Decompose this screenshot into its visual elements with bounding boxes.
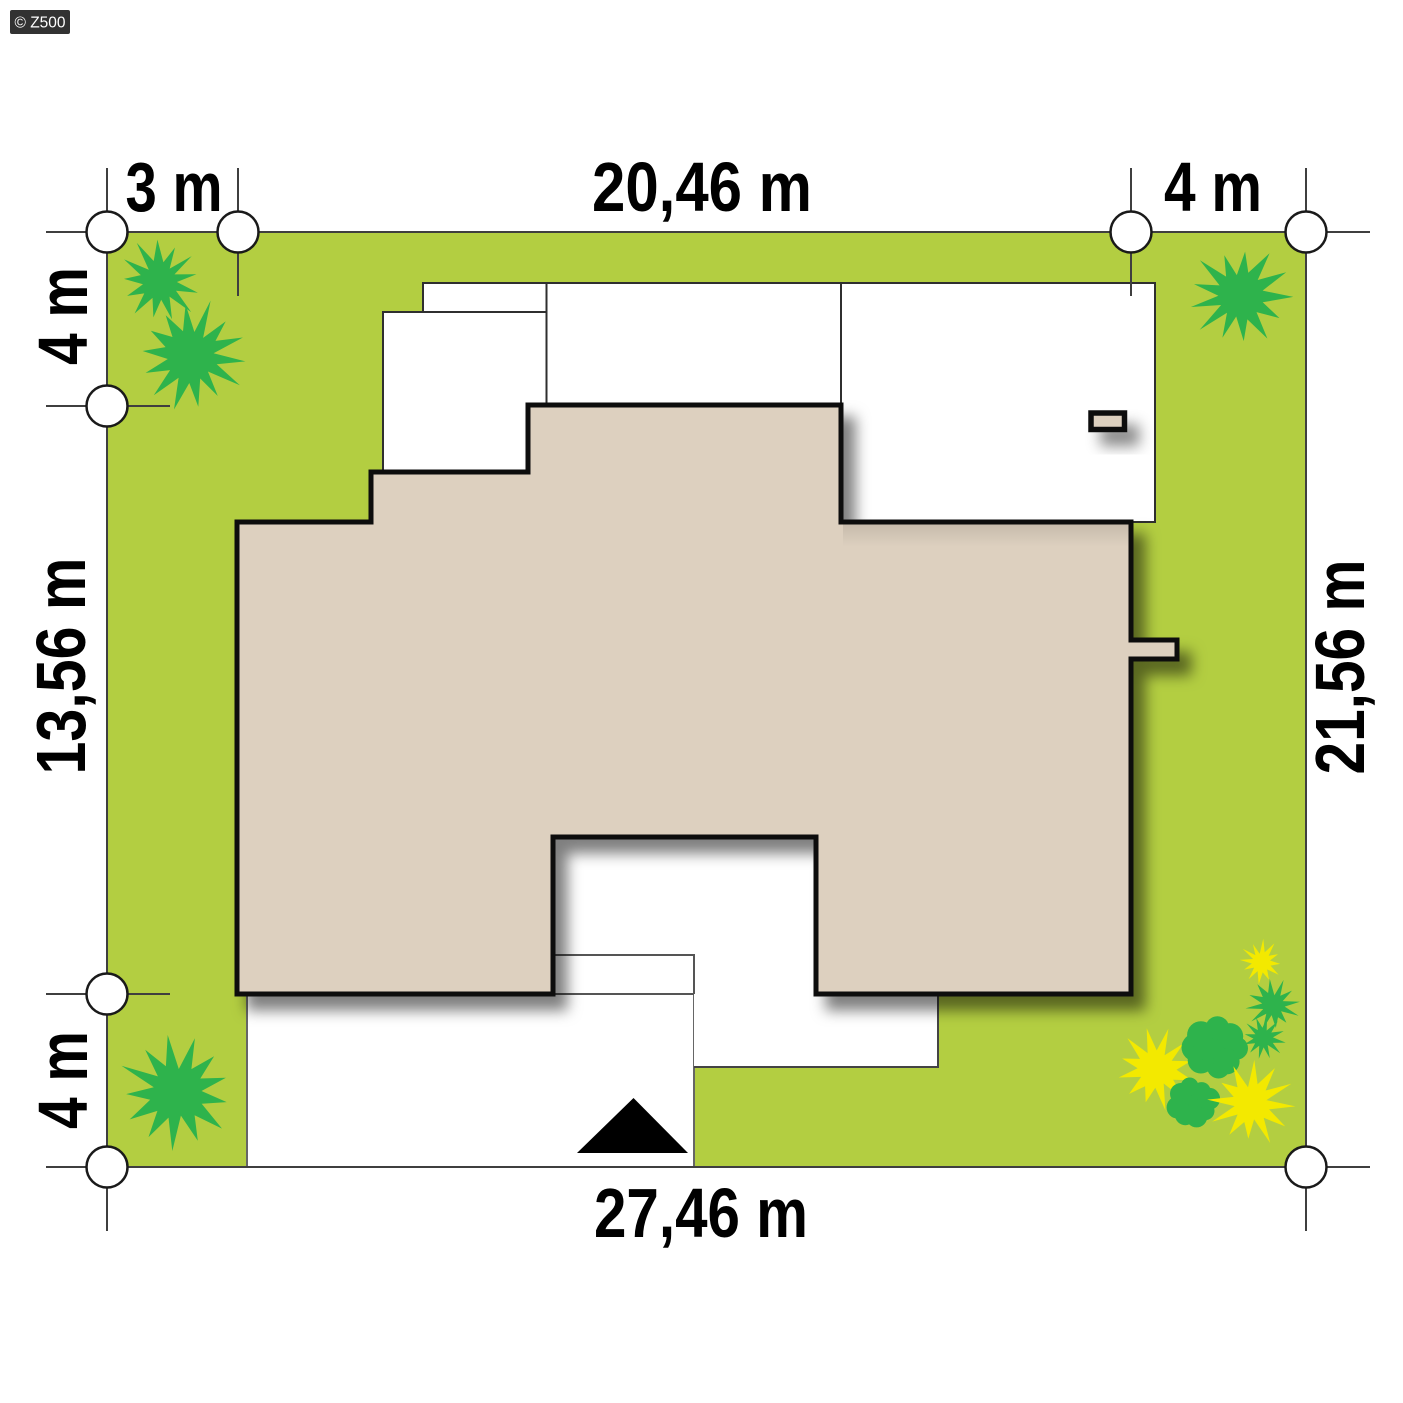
- svg-text:4 m: 4 m: [24, 267, 102, 365]
- svg-text:20,46 m: 20,46 m: [592, 148, 812, 226]
- svg-text:13,56 m: 13,56 m: [22, 558, 100, 775]
- svg-text:3 m: 3 m: [126, 148, 223, 226]
- svg-text:4 m: 4 m: [1164, 148, 1262, 226]
- svg-text:© Z500: © Z500: [14, 15, 65, 32]
- svg-text:4 m: 4 m: [24, 1031, 102, 1129]
- svg-text:27,46 m: 27,46 m: [594, 1174, 808, 1252]
- svg-text:21,56 m: 21,56 m: [1301, 560, 1379, 775]
